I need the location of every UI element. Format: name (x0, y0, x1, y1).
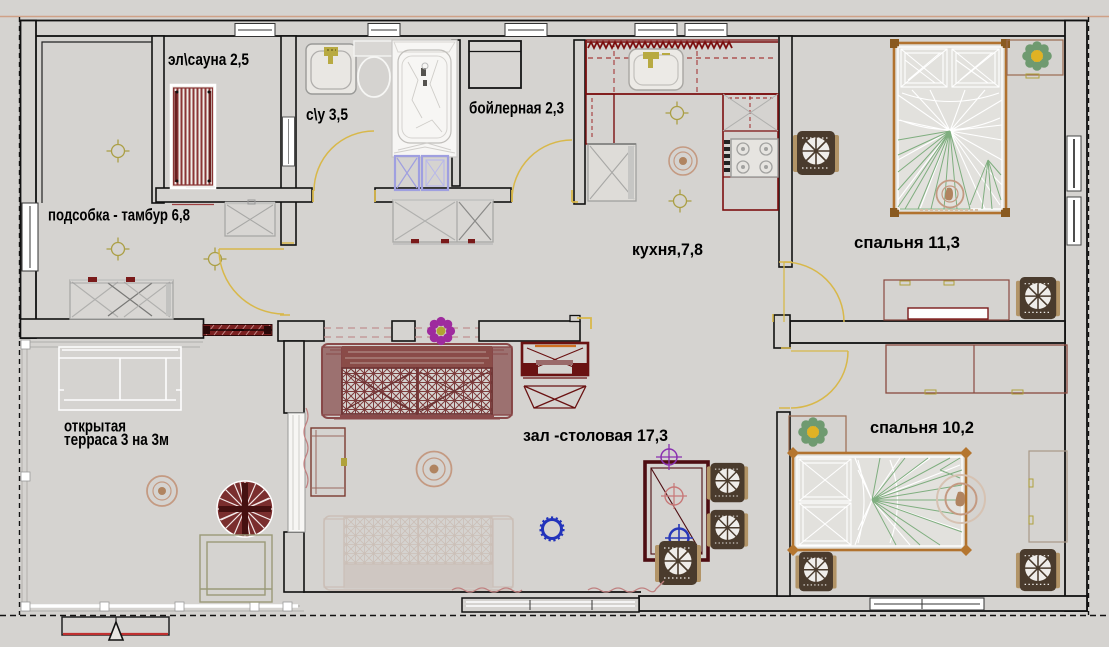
svg-text:бойлерная 2,3: бойлерная 2,3 (469, 99, 564, 118)
svg-text:кухня,7,8: кухня,7,8 (632, 240, 703, 259)
svg-text:спальня 11,3: спальня 11,3 (854, 233, 960, 252)
svg-text:зал -столовая 17,3: зал -столовая 17,3 (523, 426, 668, 445)
svg-text:эл\сауна 2,5: эл\сауна 2,5 (168, 50, 249, 69)
svg-text:c\у 3,5: c\у 3,5 (306, 105, 348, 124)
svg-text:терраса 3 на 3м: терраса 3 на 3м (64, 430, 169, 449)
svg-text:спальня 10,2: спальня 10,2 (870, 418, 974, 437)
svg-text:подсобка - тамбур 6,8: подсобка - тамбур 6,8 (48, 206, 190, 225)
